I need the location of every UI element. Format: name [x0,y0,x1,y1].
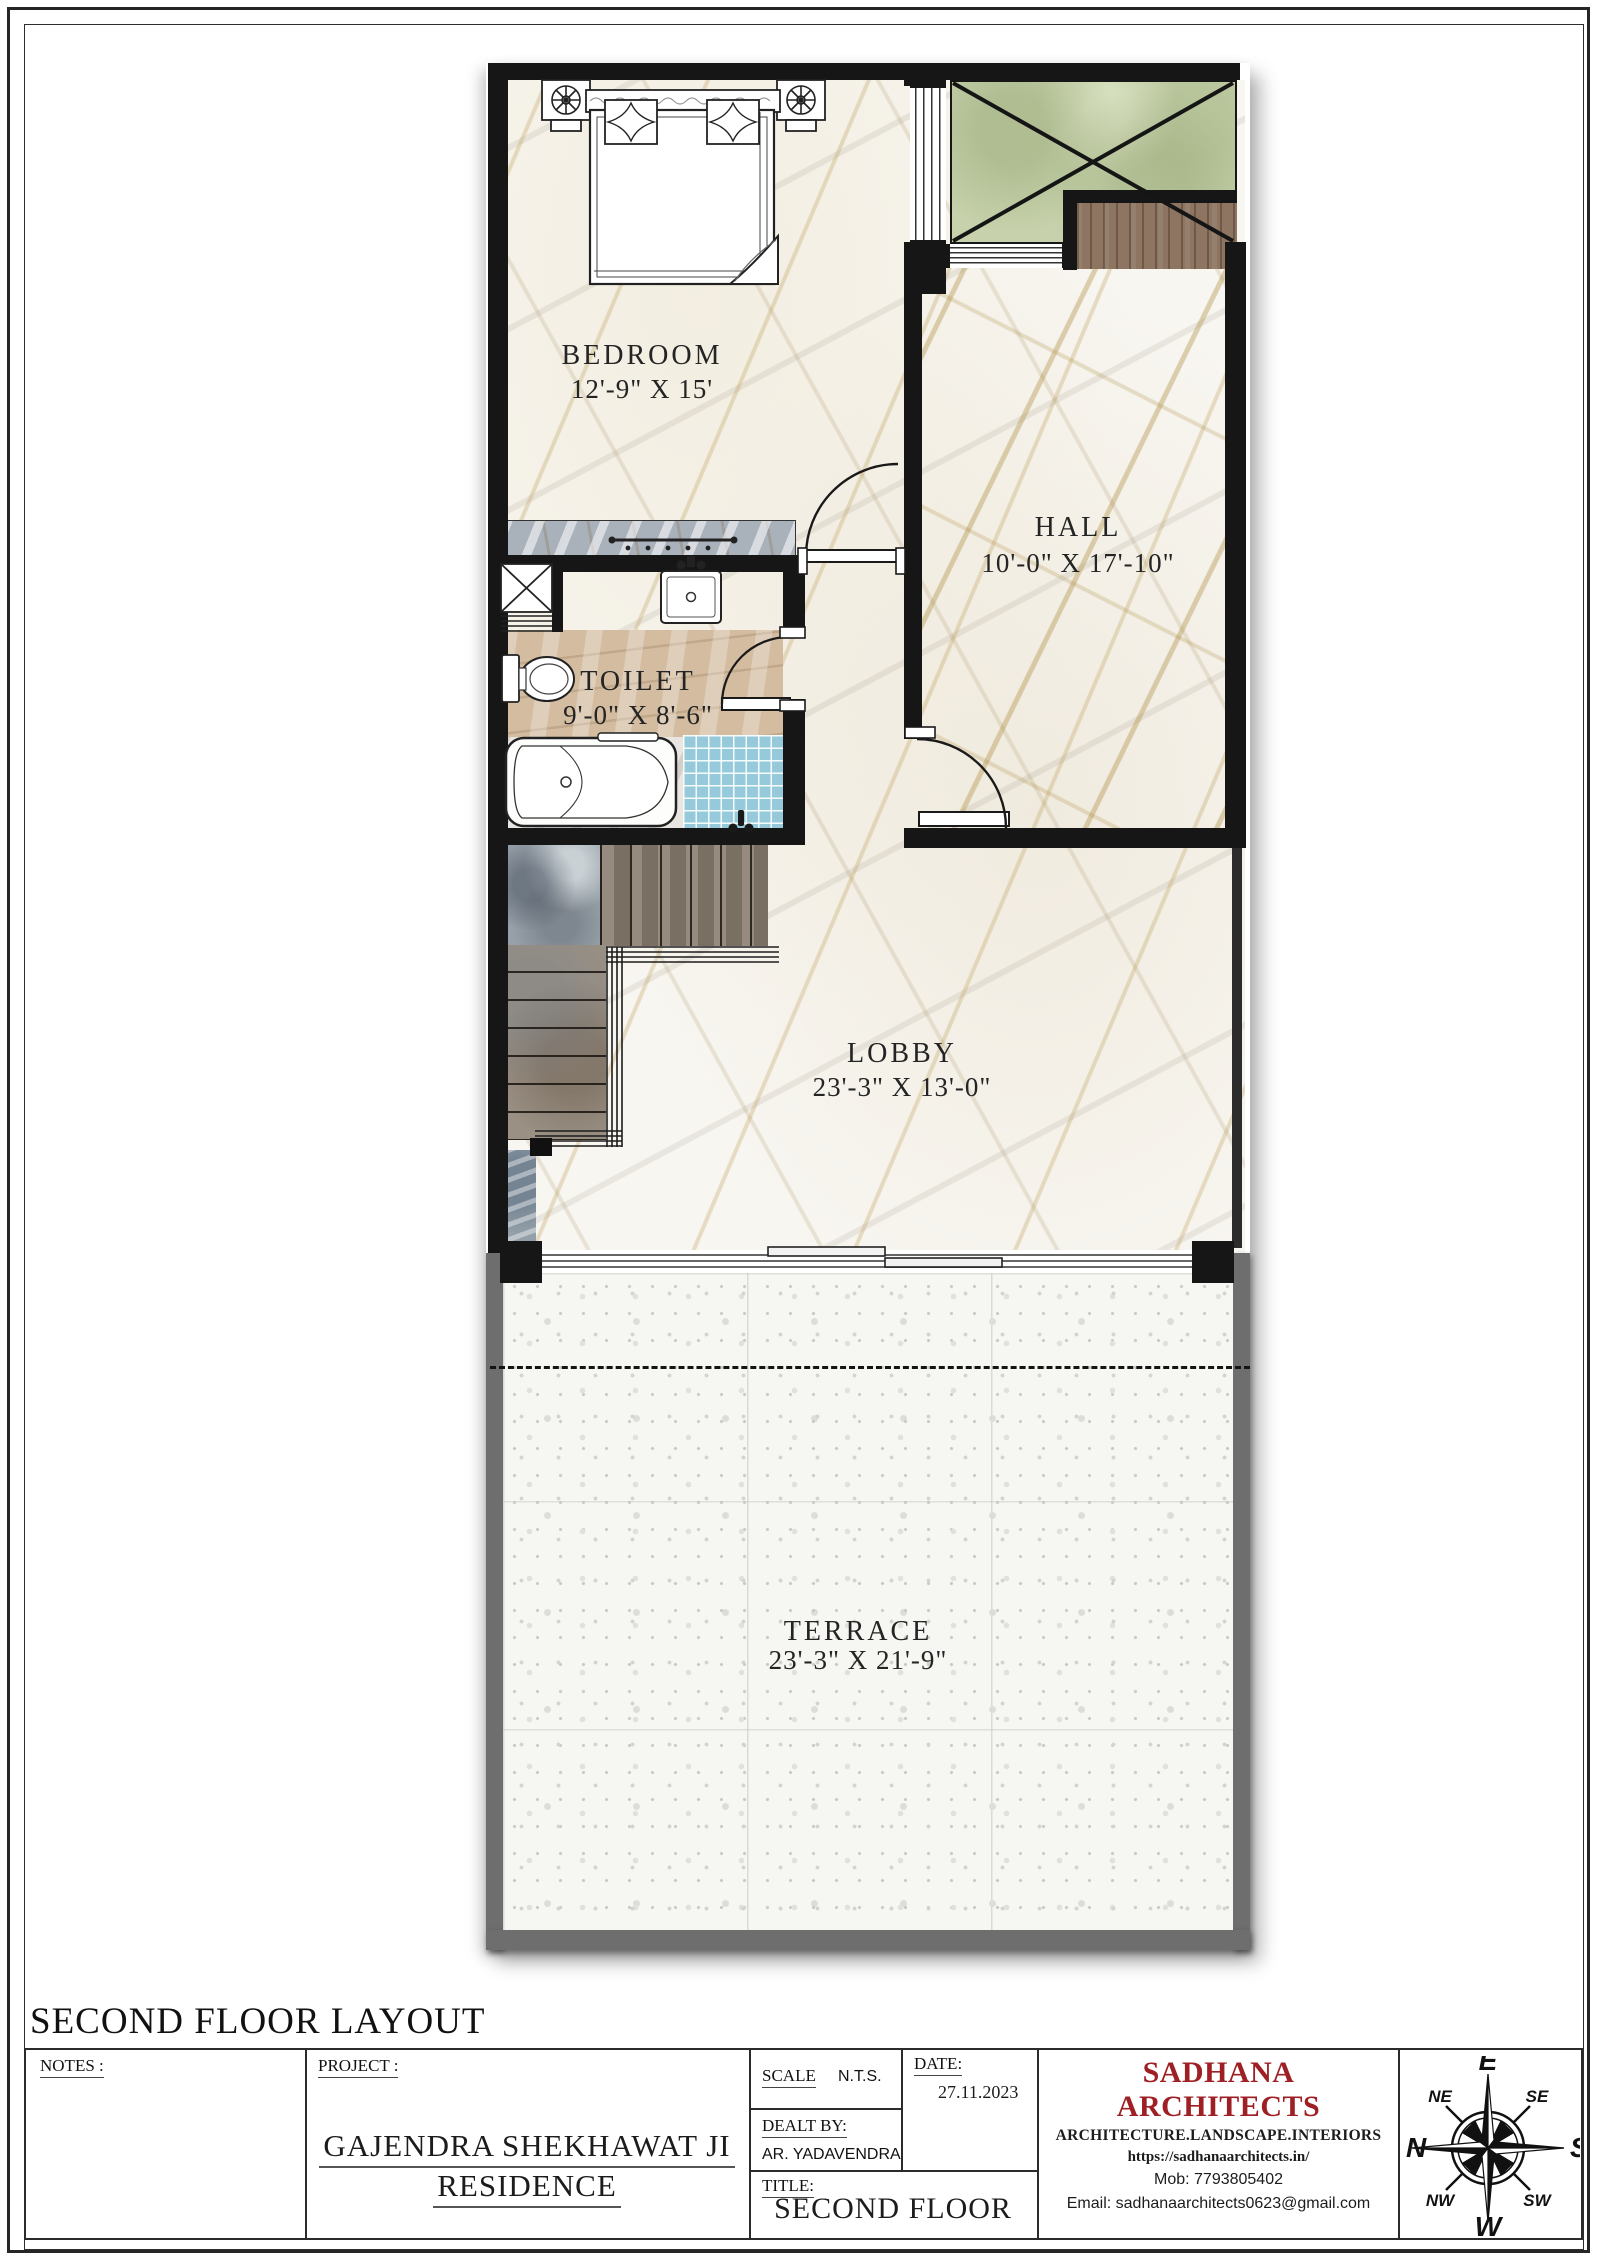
toilet-door [722,627,805,711]
room-dims-terrace: 23'-3" X 21'-9" [769,1645,948,1676]
toilet-wc [502,655,574,702]
project-name-line1: GAJENDRA SHEKHAWAT JI [307,2128,747,2164]
compass-e-label: E [1479,2056,1499,2076]
hall-door [905,727,1009,828]
bed [586,90,780,284]
compass-s-label: S [1570,2132,1580,2163]
sliding-door-handles [768,1247,1002,1267]
drawing-title: SECOND FLOOR [749,2192,1037,2226]
page-title: SECOND FLOOR LAYOUT [30,2000,486,2043]
room-label-lobby: LOBBY [847,1038,957,1070]
compass-se-label: SE [1526,2087,1549,2106]
room-dims-hall: 10'-0" X 17'-10" [981,548,1174,579]
duct-shaft-icon [501,564,552,631]
firm-email: Email: sadhanaarchitects0623@gmail.com [1039,2195,1398,2213]
compass-rose-icon: E S W N NE SE NW SW [1400,2056,1580,2236]
firm-tagline: ARCHITECTURE.LANDSCAPE.INTERIORS [1039,2127,1398,2145]
compass-n-label: N [1406,2132,1427,2163]
firm-mobile: Mob: 7793805402 [1039,2171,1398,2189]
towel-rail-icon [609,537,737,550]
room-dims-toilet: 9'-0" X 8'-6" [563,700,713,731]
compass-nw-label: NW [1426,2191,1456,2210]
project-label: PROJECT : [318,2056,398,2078]
room-dims-bedroom: 12'-9" X 15' [571,374,713,405]
room-label-toilet: TOILET [580,666,695,698]
firm-website: https://sadhanaarchitects.in/ [1039,2149,1398,2166]
room-label-terrace: TERRACE [784,1616,933,1648]
divider [749,2108,903,2110]
bedroom-door [798,464,905,574]
bathtub [506,733,676,826]
dealt-by-value: AR. YADAVENDRA [762,2146,901,2164]
room-label-bedroom: BEDROOM [561,340,722,372]
project-name-line2: RESIDENCE [307,2168,747,2204]
scale-value: N.T.S. [838,2068,882,2086]
scale-label: SCALE [762,2066,816,2088]
drawing-sheet: { "sheet": { "heading": "SECOND FLOOR LA… [0,0,1600,2263]
date-label: DATE: [914,2054,962,2076]
dealt-by-label: DEALT BY: [762,2116,847,2138]
notes-label: NOTES : [40,2056,104,2078]
room-dims-lobby: 23'-3" X 13'-0" [813,1072,992,1103]
plan-symbols-overlay [0,0,1600,2263]
compass-w-label: W [1475,2211,1504,2236]
divider [749,2170,1039,2172]
firm-name: SADHANA ARCHITECTS [1039,2056,1398,2124]
stair-railing [530,947,779,1156]
washbasin [661,556,721,623]
shower-fixture-icon [729,810,754,833]
room-label-hall: HALL [1035,512,1122,544]
compass-sw-label: SW [1523,2191,1552,2210]
date-value: 27.11.2023 [938,2082,1018,2103]
compass-ne-label: NE [1428,2087,1452,2106]
balcony-cross-icon [953,83,1233,241]
firm-info: SADHANA ARCHITECTS ARCHITECTURE.LANDSCAP… [1039,2056,1398,2213]
